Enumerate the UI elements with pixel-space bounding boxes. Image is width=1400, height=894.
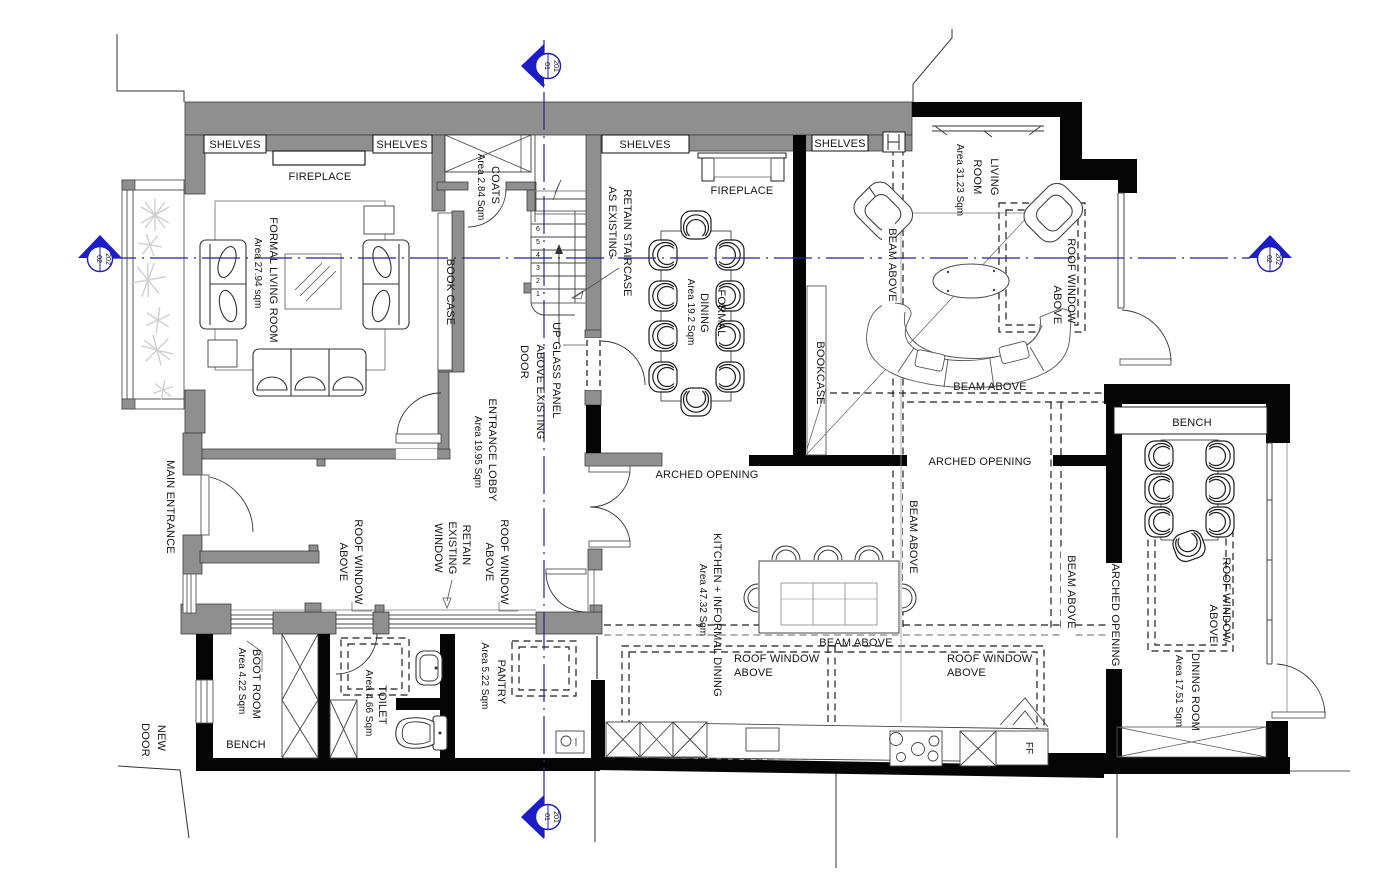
- svg-text:BEAM ABOVE: BEAM ABOVE: [1065, 555, 1077, 629]
- svg-text:BOOK CASE: BOOK CASE: [444, 259, 456, 326]
- svg-text:FORMAL LIVING ROOM: FORMAL LIVING ROOM: [267, 217, 279, 342]
- svg-text:SHELVES: SHELVES: [376, 139, 427, 151]
- svg-text:FORMAL: FORMAL: [715, 289, 727, 336]
- svg-text:02: 02: [1265, 255, 1272, 263]
- svg-text:PANTRY: PANTRY: [495, 660, 507, 705]
- svg-text:02: 02: [95, 255, 102, 263]
- svg-text:SHELVES: SHELVES: [619, 139, 670, 151]
- svg-text:Area 2.84 Sqm: Area 2.84 Sqm: [475, 154, 486, 221]
- svg-text:ROOF WINDOW: ROOF WINDOW: [498, 519, 510, 605]
- svg-text:2: 2: [536, 278, 540, 285]
- svg-text:KITCHEN + INFORMAL DINING: KITCHEN + INFORMAL DINING: [711, 533, 723, 697]
- svg-text:Area 4.66 Sqm: Area 4.66 Sqm: [363, 670, 374, 737]
- svg-text:DINING: DINING: [698, 293, 710, 333]
- svg-text:ROOF WINDOW: ROOF WINDOW: [734, 653, 820, 665]
- svg-text:SHELVES: SHELVES: [209, 139, 260, 151]
- svg-text:EXISTING: EXISTING: [446, 522, 458, 575]
- svg-text:GLASS PANEL: GLASS PANEL: [550, 341, 562, 418]
- svg-text:SHELVES: SHELVES: [814, 138, 865, 150]
- svg-text:DINING ROOM: DINING ROOM: [1189, 653, 1201, 731]
- svg-text:ROOM: ROOM: [971, 159, 983, 194]
- svg-text:ENTRANCE LOBBY: ENTRANCE LOBBY: [486, 398, 498, 502]
- svg-text:Area 27.94 sqm: Area 27.94 sqm: [252, 238, 263, 309]
- svg-text:BOOKCASE: BOOKCASE: [814, 341, 826, 404]
- svg-text:ABOVE: ABOVE: [483, 543, 495, 582]
- svg-text:DOOR: DOOR: [139, 723, 151, 757]
- svg-text:TOILET: TOILET: [376, 685, 388, 725]
- svg-text:ARCHED OPENING: ARCHED OPENING: [1109, 563, 1121, 666]
- svg-text:LIVING: LIVING: [988, 158, 1000, 195]
- svg-text:MAIN ENTRANCE: MAIN ENTRANCE: [164, 460, 176, 554]
- svg-text:Area 19.2 Sqm: Area 19.2 Sqm: [685, 279, 696, 346]
- svg-text:COATS: COATS: [489, 166, 501, 204]
- svg-text:ABOVE: ABOVE: [1051, 286, 1063, 325]
- svg-text:Area 4.22 Sqm: Area 4.22 Sqm: [236, 648, 247, 715]
- svg-text:ROOF WINDOW: ROOF WINDOW: [947, 653, 1033, 665]
- svg-text:BEAM ABOVE: BEAM ABOVE: [953, 381, 1027, 393]
- svg-text:ROOF WINDOW: ROOF WINDOW: [1220, 557, 1232, 643]
- svg-text:ROOF WINDOW: ROOF WINDOW: [1065, 238, 1077, 324]
- svg-text:01: 01: [543, 62, 550, 70]
- svg-text:ABOVE: ABOVE: [947, 667, 986, 679]
- svg-text:FIREPLACE: FIREPLACE: [711, 185, 774, 197]
- svg-text:Area 5.22 Sqm: Area 5.22 Sqm: [479, 643, 490, 710]
- svg-text:201: 201: [552, 60, 559, 72]
- svg-text:UP: UP: [550, 322, 562, 338]
- svg-text:Area 31.23 Sqm: Area 31.23 Sqm: [954, 144, 965, 216]
- svg-text:6: 6: [536, 226, 540, 233]
- svg-text:FIREPLACE: FIREPLACE: [289, 171, 352, 183]
- svg-text:202: 202: [1274, 253, 1281, 265]
- svg-text:01: 01: [543, 813, 550, 821]
- svg-text:WINDOW: WINDOW: [432, 523, 444, 573]
- svg-text:201: 201: [552, 811, 559, 823]
- svg-text:BOOT ROOM: BOOT ROOM: [250, 649, 262, 719]
- svg-text:ABOVE: ABOVE: [337, 543, 349, 582]
- svg-text:ROOF WINDOW: ROOF WINDOW: [352, 519, 364, 605]
- svg-text:BENCH: BENCH: [1172, 417, 1212, 429]
- svg-text:BEAM ABOVE: BEAM ABOVE: [819, 637, 893, 649]
- svg-text:ARCHED OPENING: ARCHED OPENING: [928, 456, 1031, 468]
- svg-text:1: 1: [536, 291, 540, 298]
- svg-text:RETAIN STAIRCASE: RETAIN STAIRCASE: [621, 189, 633, 296]
- svg-text:BENCH: BENCH: [226, 739, 266, 751]
- svg-text:5: 5: [536, 239, 540, 246]
- svg-text:AS EXISTING: AS EXISTING: [606, 186, 618, 257]
- svg-text:ABOVE: ABOVE: [734, 667, 773, 679]
- svg-text:FF: FF: [1023, 742, 1034, 754]
- svg-text:Area 17.51 Sqm: Area 17.51 Sqm: [1173, 655, 1184, 727]
- svg-text:ABOVE: ABOVE: [1207, 605, 1219, 644]
- svg-text:Area 47.32 Sqm: Area 47.32 Sqm: [697, 564, 708, 636]
- svg-text:ABOVE EXISTING: ABOVE EXISTING: [534, 344, 546, 439]
- svg-text:3: 3: [536, 265, 540, 272]
- svg-text:RETAIN: RETAIN: [460, 525, 472, 566]
- svg-text:BEAM ABOVE: BEAM ABOVE: [886, 228, 898, 302]
- svg-text:BEAM ABOVE: BEAM ABOVE: [907, 500, 919, 574]
- svg-text:202: 202: [104, 253, 111, 265]
- svg-text:ARCHED OPENING: ARCHED OPENING: [655, 469, 758, 481]
- svg-text:Area 19.95 Sqm: Area 19.95 Sqm: [472, 416, 483, 488]
- svg-text:DOOR: DOOR: [518, 345, 530, 379]
- svg-text:NEW: NEW: [155, 725, 167, 752]
